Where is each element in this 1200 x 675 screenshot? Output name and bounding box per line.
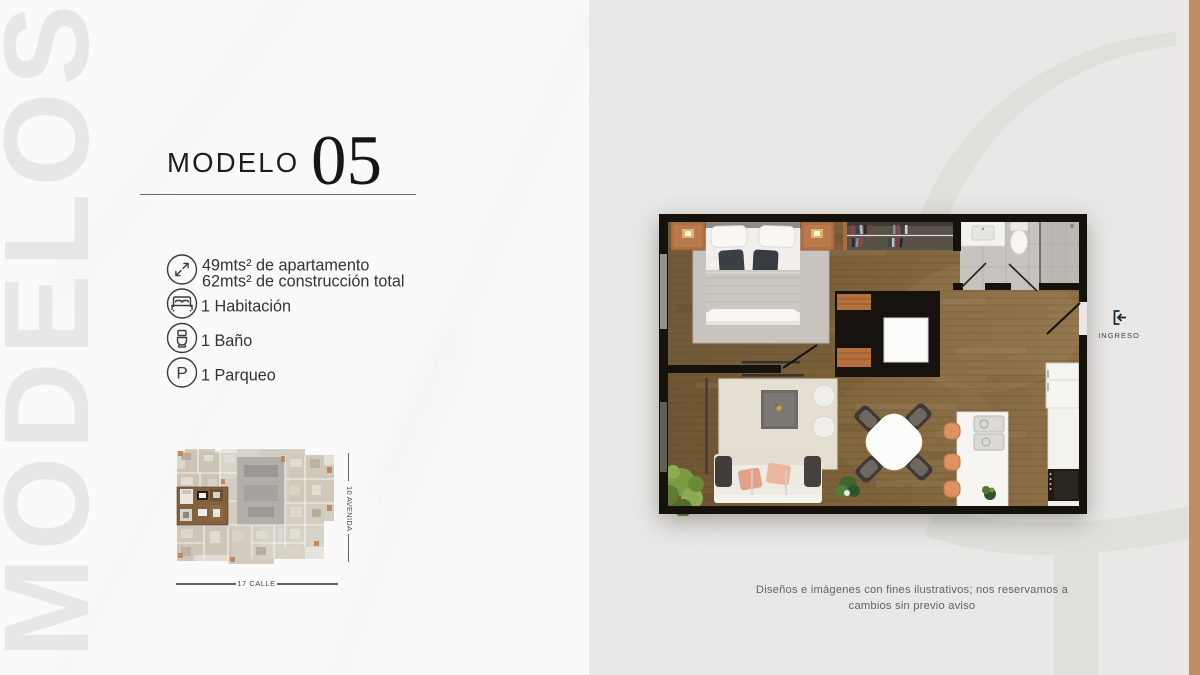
svg-text:1 Parqueo: 1 Parqueo xyxy=(201,367,276,385)
svg-text:62mts² de construcción total: 62mts² de construcción total xyxy=(202,273,404,291)
svg-text:P: P xyxy=(176,364,187,383)
svg-text:1 Baño: 1 Baño xyxy=(201,332,252,350)
svg-text:1 Habitación: 1 Habitación xyxy=(201,298,291,316)
